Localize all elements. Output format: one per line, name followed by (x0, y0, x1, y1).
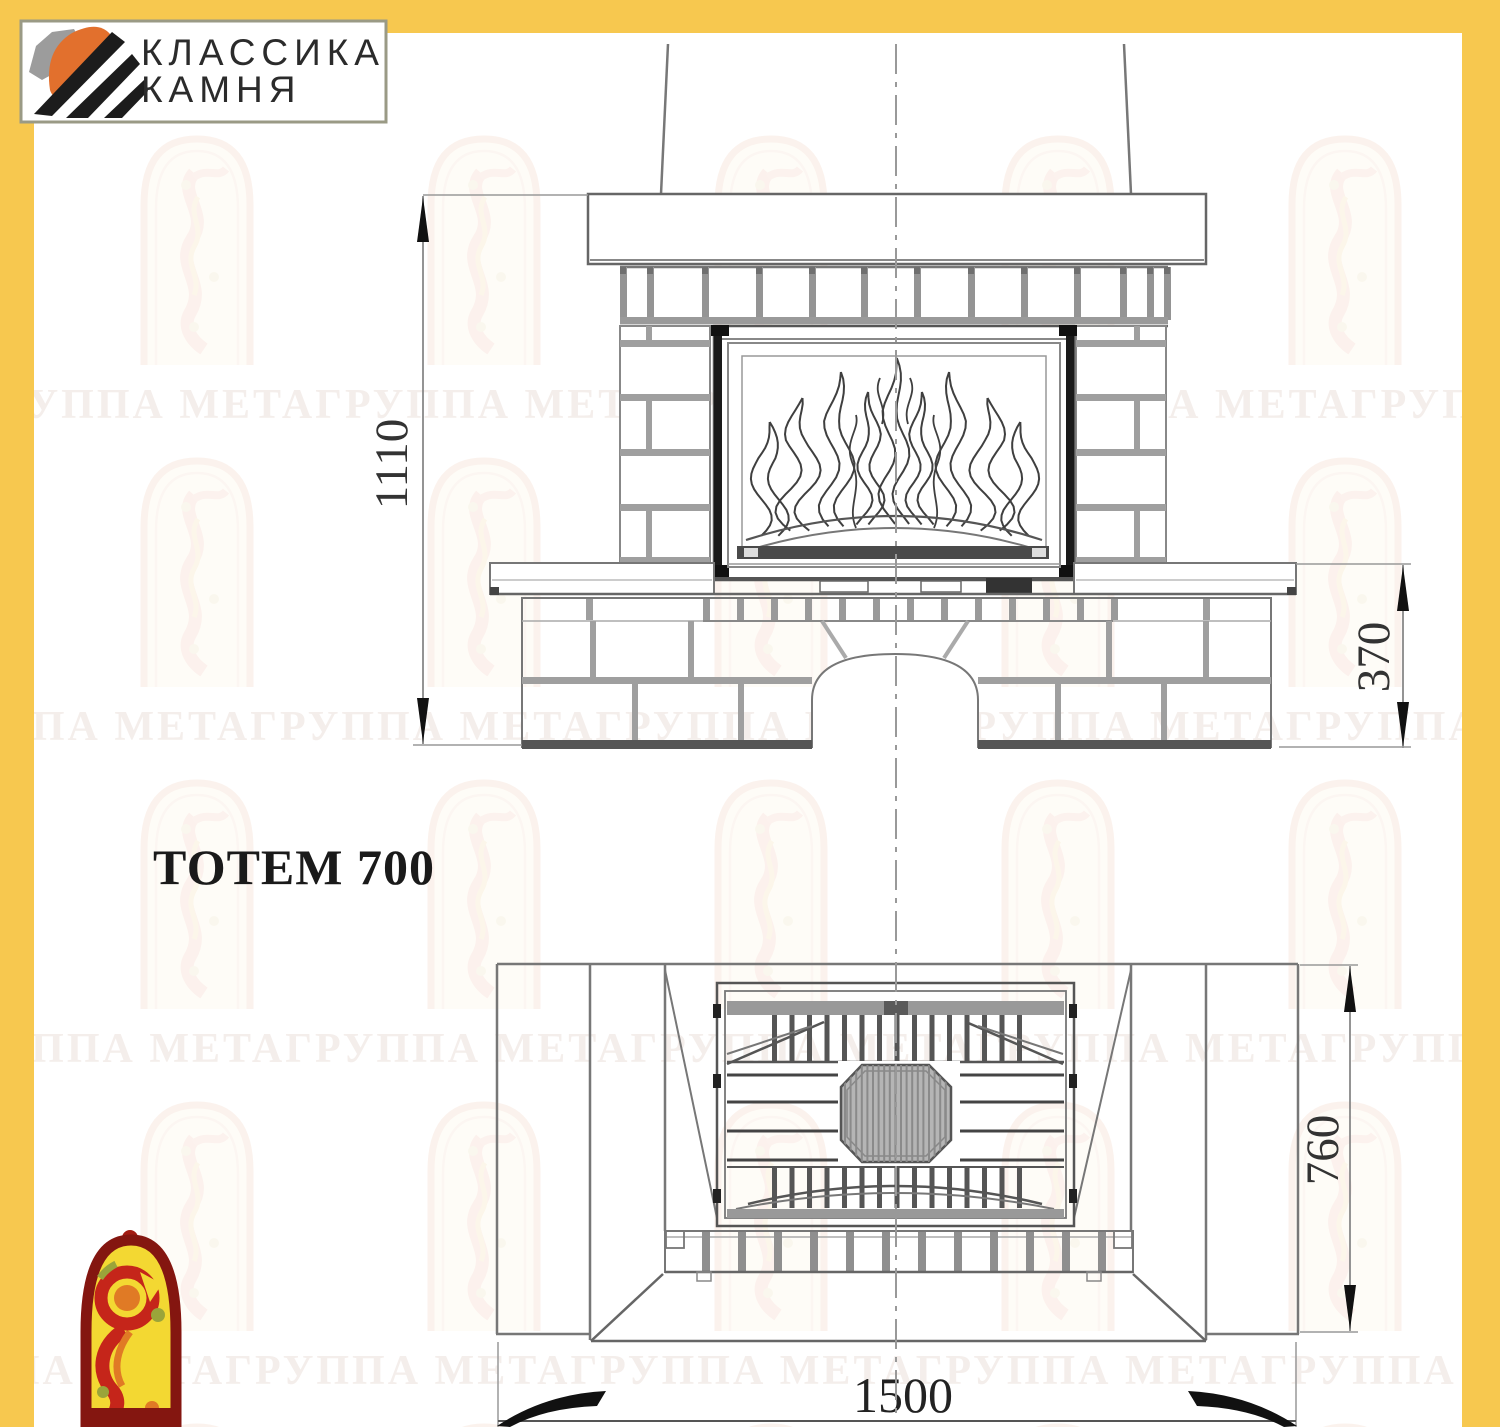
svg-text:370: 370 (1348, 622, 1400, 693)
svg-text:ГРУППА МЕТАГРУППА МЕТАГРУППА М: ГРУППА МЕТАГРУППА МЕТАГРУППА МЕТАГРУППА … (0, 1348, 1500, 1394)
svg-text:1110: 1110 (366, 419, 418, 510)
svg-text:760: 760 (1297, 1115, 1349, 1186)
svg-text:1500: 1500 (853, 1367, 953, 1423)
svg-text:ТОТЕМ 700: ТОТЕМ 700 (153, 839, 435, 895)
svg-text:КЛАССИКА: КЛАССИКА (141, 32, 385, 73)
svg-text:КАМНЯ: КАМНЯ (141, 69, 302, 110)
svg-text:ГРУППА МЕТАГРУППА МЕТАГРУППА М: ГРУППА МЕТАГРУППА МЕТАГРУППА МЕТАГРУППА … (0, 1026, 1500, 1072)
